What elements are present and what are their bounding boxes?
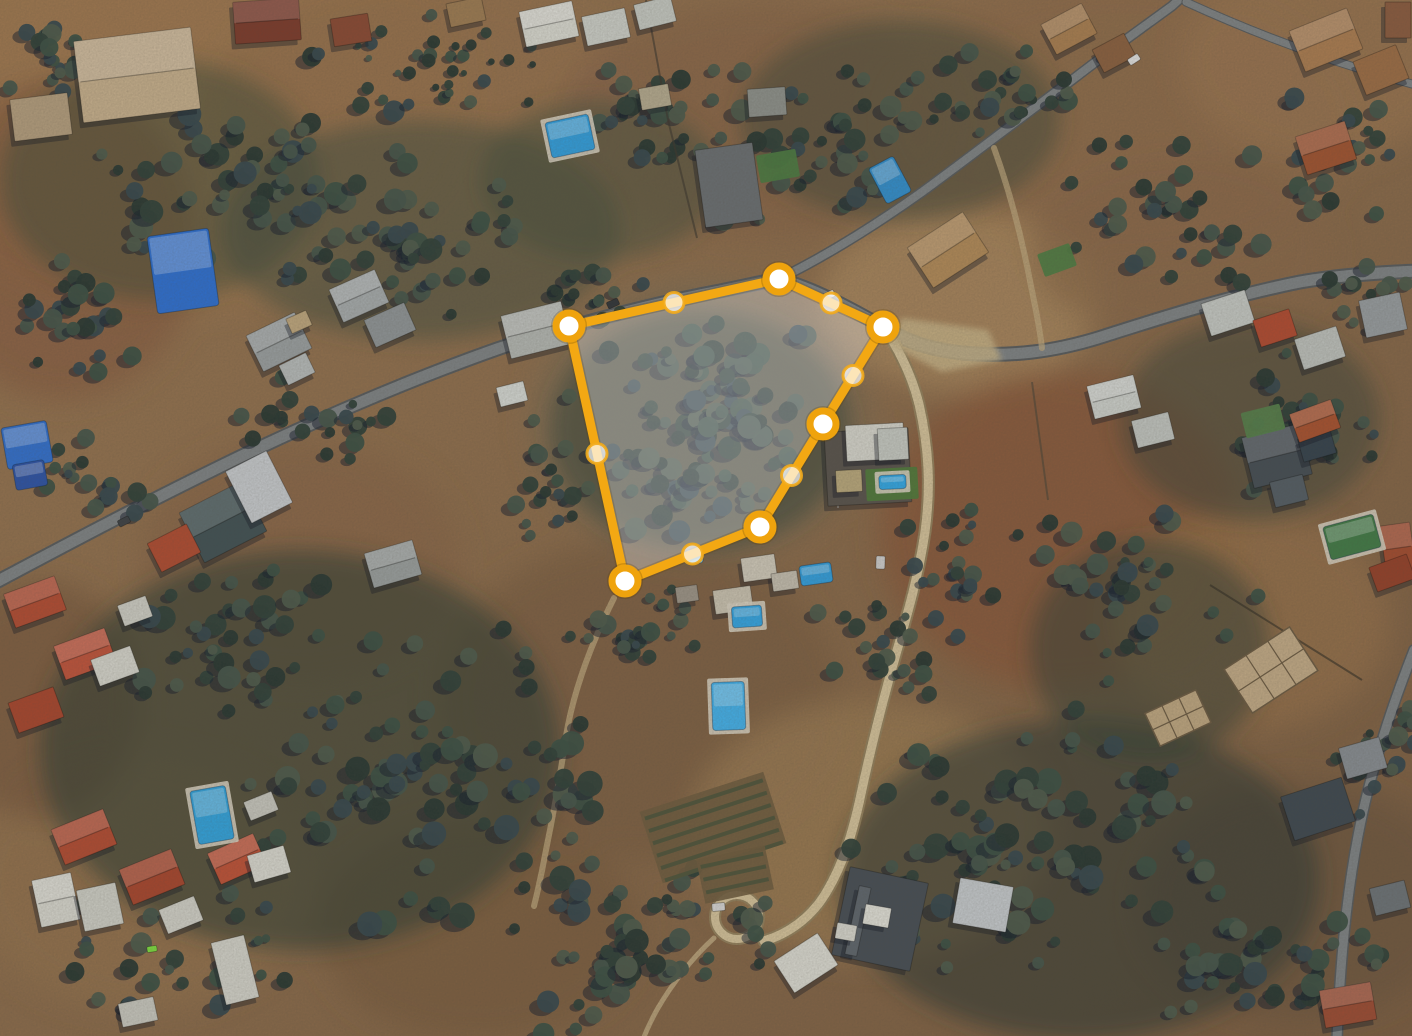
polygon-midpoint-handle[interactable] (821, 293, 841, 313)
polygon-midpoint-handle[interactable] (782, 466, 802, 486)
polygon-vertex-handle[interactable] (612, 568, 638, 594)
satellite-scene[interactable] (0, 0, 1412, 1036)
polygon-midpoint-handle[interactable] (587, 444, 607, 464)
polygon-midpoint-handle[interactable] (683, 544, 703, 564)
map-viewport[interactable] (0, 0, 1412, 1036)
polygon-vertex-handle[interactable] (747, 514, 773, 540)
polygon-vertex-handle[interactable] (870, 314, 896, 340)
polygon-midpoint-handle[interactable] (843, 366, 863, 386)
polygon-vertex-handle[interactable] (810, 411, 836, 437)
polygon-vertex-handle[interactable] (766, 266, 792, 292)
polygon-midpoint-handle[interactable] (664, 293, 684, 313)
polygon-vertex-handle[interactable] (556, 313, 582, 339)
